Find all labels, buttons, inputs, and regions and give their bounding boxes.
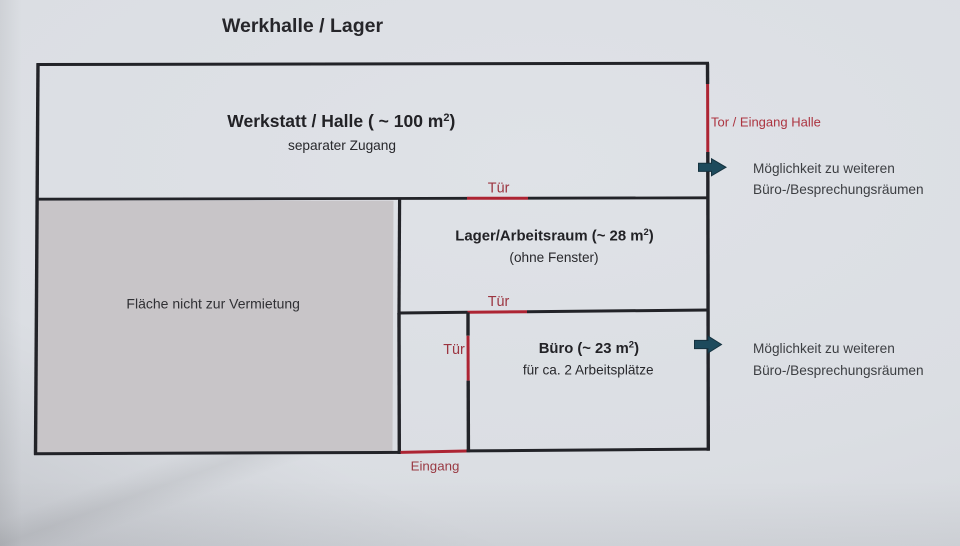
svg-text:Möglichkeit zu weiteren: Möglichkeit zu weiteren xyxy=(753,161,895,176)
svg-text:Eingang: Eingang xyxy=(411,459,460,474)
svg-text:Tür: Tür xyxy=(488,294,510,310)
svg-text:Werkhalle / Lager: Werkhalle / Lager xyxy=(222,15,384,37)
svg-text:Tür: Tür xyxy=(443,342,465,358)
svg-text:Fläche nicht zur Vermietung: Fläche nicht zur Vermietung xyxy=(126,295,300,311)
svg-text:Büro (~ 23 m2): Büro (~ 23 m2) xyxy=(539,340,639,358)
svg-text:(ohne Fenster): (ohne Fenster) xyxy=(509,250,598,265)
svg-text:Büro-/Besprechungsräumen: Büro-/Besprechungsräumen xyxy=(753,182,924,197)
svg-text:Werkstatt / Halle ( ~ 100 m2): Werkstatt / Halle ( ~ 100 m2) xyxy=(227,111,455,131)
svg-text:separater Zugang: separater Zugang xyxy=(288,138,396,153)
svg-text:Tür: Tür xyxy=(488,181,510,197)
svg-text:für ca. 2 Arbeitsplätze: für ca. 2 Arbeitsplätze xyxy=(523,363,654,378)
svg-text:Büro-/Besprechungsräumen: Büro-/Besprechungsräumen xyxy=(753,363,924,378)
svg-text:Möglichkeit zu weiteren: Möglichkeit zu weiteren xyxy=(753,341,895,356)
svg-text:Lager/Arbeitsraum (~ 28 m2): Lager/Arbeitsraum (~ 28 m2) xyxy=(455,227,654,245)
svg-text:Tor / Eingang Halle: Tor / Eingang Halle xyxy=(711,115,821,130)
